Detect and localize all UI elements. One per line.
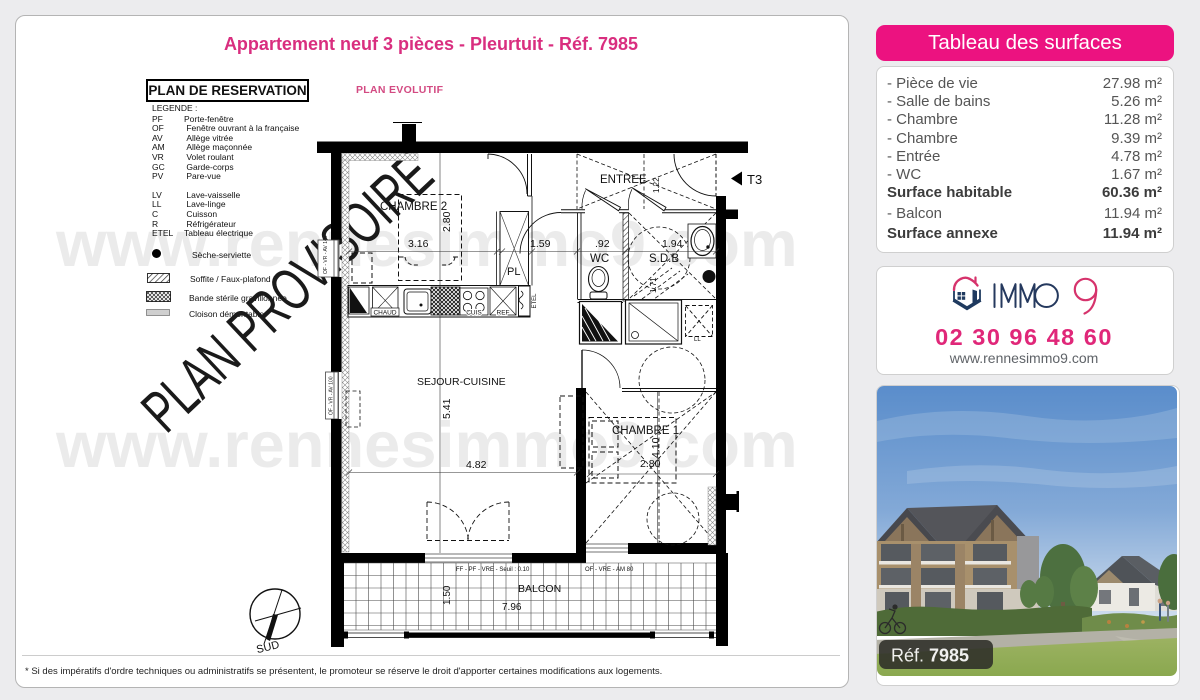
- svg-text:7.96: 7.96: [502, 602, 522, 613]
- svg-text:CUIS: CUIS: [466, 310, 482, 317]
- svg-text:OF - VR - AV 100: OF - VR - AV 100: [329, 376, 335, 415]
- svg-text:SUD: SUD: [255, 639, 280, 656]
- svg-text:3.16: 3.16: [408, 238, 429, 250]
- svg-text:ENTREE: ENTREE: [600, 174, 647, 186]
- svg-text:OF - VRE - AM 80: OF - VRE - AM 80: [585, 567, 634, 573]
- svg-text:1.94: 1.94: [662, 238, 683, 250]
- svg-text:1.71: 1.71: [649, 277, 658, 293]
- svg-text:REF: REF: [497, 310, 510, 317]
- svg-text:4.82: 4.82: [466, 459, 487, 471]
- svg-text:4.10: 4.10: [650, 437, 662, 458]
- svg-text:FF - PF - VRE - Seuil : 0.10: FF - PF - VRE - Seuil : 0.10: [456, 567, 530, 573]
- svg-text:OF - VR - AV 140: OF - VR - AV 140: [323, 235, 329, 274]
- svg-text:T3: T3: [747, 172, 762, 187]
- svg-text:1.59: 1.59: [530, 238, 551, 250]
- svg-text:1.22: 1.22: [652, 177, 661, 193]
- svg-text:2.80: 2.80: [441, 211, 453, 232]
- svg-text:SEJOUR-CUISINE: SEJOUR-CUISINE: [417, 376, 506, 388]
- svg-text:CHAMBRE 2: CHAMBRE 2: [380, 201, 447, 213]
- svg-text:.92: .92: [595, 238, 610, 250]
- svg-text:CHAMBRE 1: CHAMBRE 1: [612, 425, 679, 437]
- svg-text:WC: WC: [590, 253, 609, 265]
- svg-text:ETEL: ETEL: [532, 293, 538, 309]
- svg-text:5.41: 5.41: [441, 398, 453, 419]
- svg-text:2.80: 2.80: [640, 458, 661, 470]
- svg-text:Réf. 7985: Réf. 7985: [891, 646, 969, 666]
- svg-text:S.D.B: S.D.B: [649, 253, 679, 265]
- svg-text:BALCON: BALCON: [518, 583, 561, 595]
- svg-text:CHAUD: CHAUD: [373, 310, 396, 317]
- svg-text:PL: PL: [507, 266, 520, 278]
- svg-text:LL: LL: [694, 337, 701, 343]
- svg-text:1.50: 1.50: [442, 585, 453, 605]
